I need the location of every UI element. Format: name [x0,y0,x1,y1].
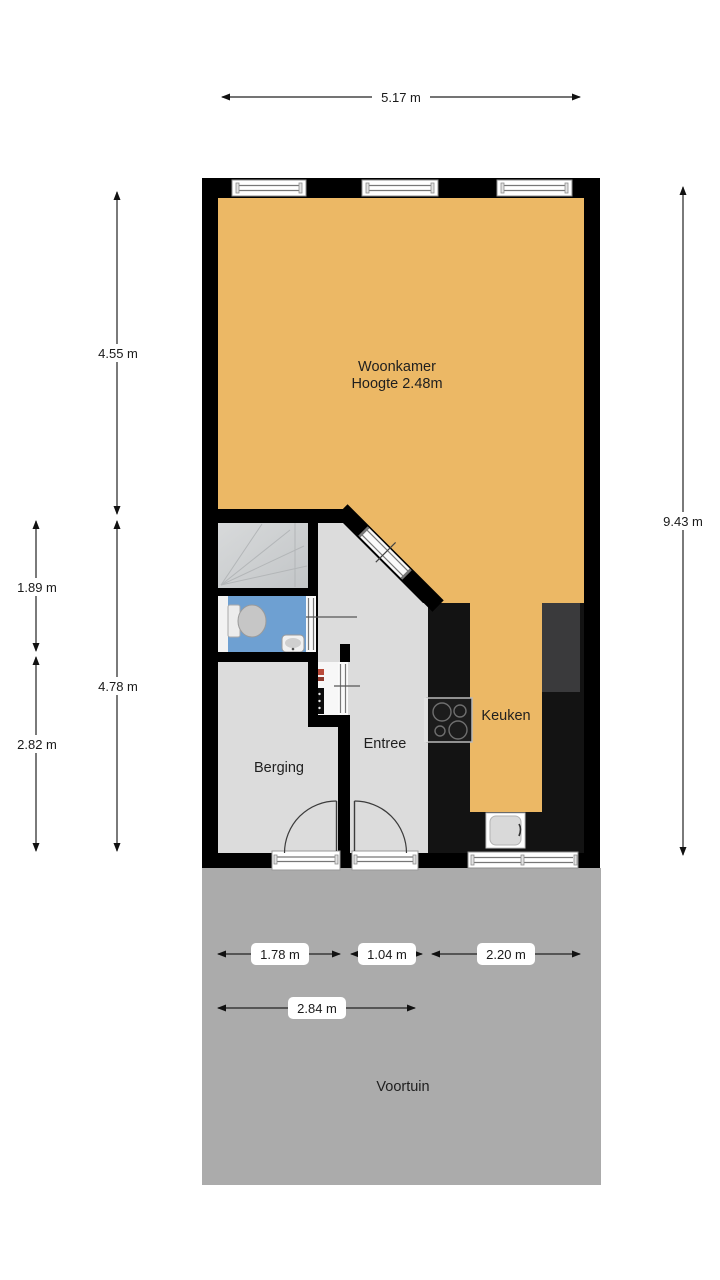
floor-plan: 5.17 m 4.55 m 4.78 m 1.89 m 2.82 m 9.43 … [0,0,720,1280]
dimension-outer-berging: 2.82 m [11,657,63,851]
dimension-top-width: 5.17 m [222,87,580,106]
cooktop-icon [424,698,472,742]
kitchen-sink-icon [486,813,525,848]
dimension-right-total: 9.43 m [657,187,709,855]
toilet-room [218,596,306,652]
svg-text:4.78 m: 4.78 m [98,679,138,694]
stairs [218,522,308,588]
dimension-outer-stairs-toilet: 1.89 m [11,521,63,651]
svg-text:1.04 m: 1.04 m [367,947,407,962]
floor-plan-page: 5.17 m 4.55 m 4.78 m 1.89 m 2.82 m 9.43 … [0,0,720,1280]
facade-windows [232,180,572,196]
entree-label: Entree [364,736,407,752]
svg-text:2.84 m: 2.84 m [297,1001,337,1016]
dimension-bottom-entree: 1.04 m [351,943,422,965]
svg-text:2.20 m: 2.20 m [486,947,526,962]
window-icon [232,180,306,196]
woonkamer-label: Woonkamer [358,359,436,375]
window-icon [362,180,438,196]
keuken-label: Keuken [481,708,530,724]
kitchen-window-icon [468,852,578,868]
svg-text:9.43 m: 9.43 m [663,514,703,529]
voortuin-label: Voortuin [376,1079,429,1095]
dimension-left-hall: 4.78 m [92,521,144,851]
tall-unit [542,603,580,692]
boiler-icon [317,669,324,681]
woonkamer-height-note: Hoogte 2.48m [351,376,442,392]
svg-text:1.78 m: 1.78 m [260,947,300,962]
svg-text:4.55 m: 4.55 m [98,346,138,361]
meter-cupboard [315,662,340,715]
berging-label: Berging [254,760,304,776]
voortuin-area [202,868,601,1185]
svg-text:2.82 m: 2.82 m [17,737,57,752]
window-icon [497,180,572,196]
hand-basin-icon [282,635,304,652]
svg-text:5.17 m: 5.17 m [381,90,421,105]
svg-text:1.89 m: 1.89 m [17,580,57,595]
toilet-icon [228,605,266,637]
dimension-left-woonkamer: 4.55 m [92,192,144,514]
